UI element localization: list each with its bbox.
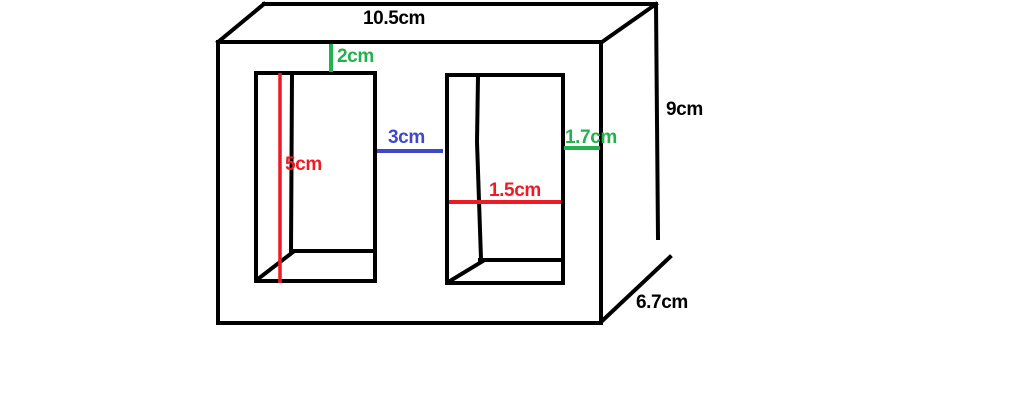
paint-canvas: 10.5cm 2cm 9cm 6.7cm 3cm 1.7cm 5cm 1.5cm — [0, 0, 1024, 401]
dim-label-box-depth: 6.7cm — [636, 292, 688, 313]
right-hole-outline — [447, 75, 563, 283]
dim-label-right-hole-width: 1.5cm — [489, 180, 541, 201]
dim-label-box-height: 9cm — [666, 99, 703, 120]
dim-label-top-width: 10.5cm — [363, 8, 425, 29]
box-dimension-sketch: 10.5cm 2cm 9cm 6.7cm 3cm 1.7cm 5cm 1.5cm — [0, 0, 1024, 401]
right-hole-depth-diagonal — [450, 261, 483, 281]
dim-label-right-margin: 1.7cm — [565, 127, 617, 148]
right-hole — [447, 75, 563, 283]
dim-label-gap-between-holes: 3cm — [388, 127, 425, 148]
left-hole-depth-diagonal — [258, 252, 293, 279]
box-top-right-depth-edge — [602, 4, 656, 42]
left-hole — [256, 73, 375, 281]
box-top-left-depth-edge — [218, 4, 264, 42]
right-hole-inner-vertical-edge — [477, 77, 481, 259]
dim-label-top-margin: 2cm — [337, 46, 374, 67]
dim-label-left-hole-height: 5cm — [285, 154, 322, 175]
box-back-right-edge — [656, 4, 658, 238]
